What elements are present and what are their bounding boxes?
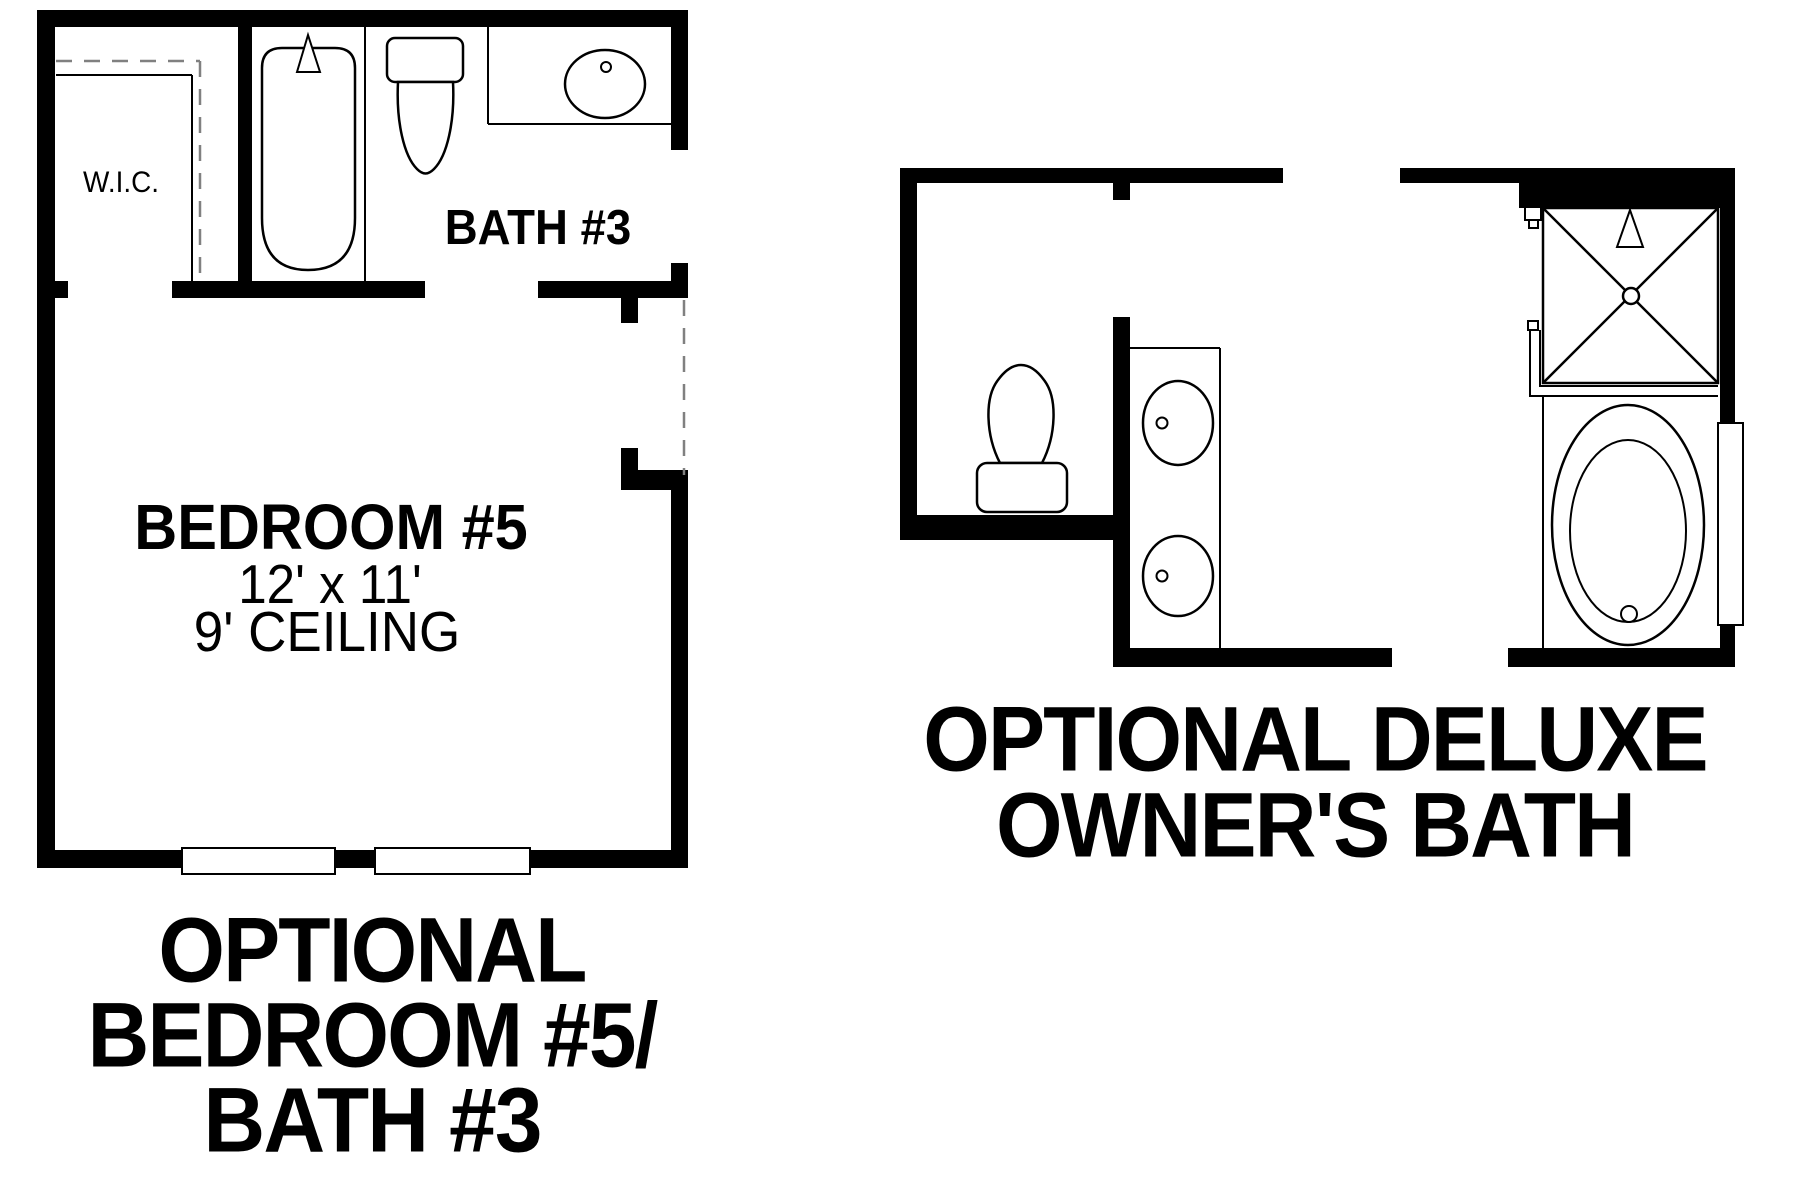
sink-faucet-icon bbox=[601, 62, 611, 72]
window bbox=[182, 848, 335, 874]
toilet bbox=[387, 38, 463, 174]
garden-tub bbox=[1543, 397, 1704, 648]
sink-basin bbox=[1143, 536, 1213, 616]
sink-faucet-icon bbox=[1157, 571, 1168, 582]
toilet-bowl bbox=[988, 365, 1053, 463]
vanity-sink bbox=[1143, 381, 1213, 616]
left-plan-walls bbox=[37, 10, 688, 868]
sink-faucet-icon bbox=[1157, 418, 1168, 429]
floorplan-page: { "document": { "type": "floor-plan-opti… bbox=[0, 0, 1800, 1200]
right-plan-title-line2: OWNER'S BATH bbox=[996, 774, 1634, 879]
right-plan bbox=[900, 168, 1743, 667]
shower bbox=[1525, 207, 1718, 396]
shower-door-hinge bbox=[1528, 321, 1538, 330]
tub-window-ledge bbox=[1718, 423, 1743, 625]
sink-basin bbox=[1143, 381, 1213, 465]
toilet-tank bbox=[977, 463, 1067, 512]
toilet-tank bbox=[387, 38, 463, 82]
sink-basin bbox=[565, 50, 645, 118]
left-plan bbox=[37, 10, 688, 874]
left-plan-title-line3: BATH #3 bbox=[203, 1069, 540, 1174]
toilet bbox=[977, 365, 1067, 512]
tub-drain-icon bbox=[1621, 606, 1637, 622]
wic-label: W.I.C. bbox=[83, 166, 159, 200]
tub-inner-rim bbox=[1570, 440, 1686, 622]
shower-drain-icon bbox=[1623, 288, 1639, 304]
bedroom5-ceiling: 9' CEILING bbox=[194, 599, 460, 665]
shower-door-hinge bbox=[1529, 220, 1538, 228]
bath3-label: BATH #3 bbox=[445, 200, 632, 256]
bathtub bbox=[262, 35, 355, 270]
window bbox=[375, 848, 530, 874]
shower-door-hinge bbox=[1525, 207, 1541, 220]
toilet-bowl bbox=[398, 82, 454, 174]
sink bbox=[565, 50, 645, 118]
